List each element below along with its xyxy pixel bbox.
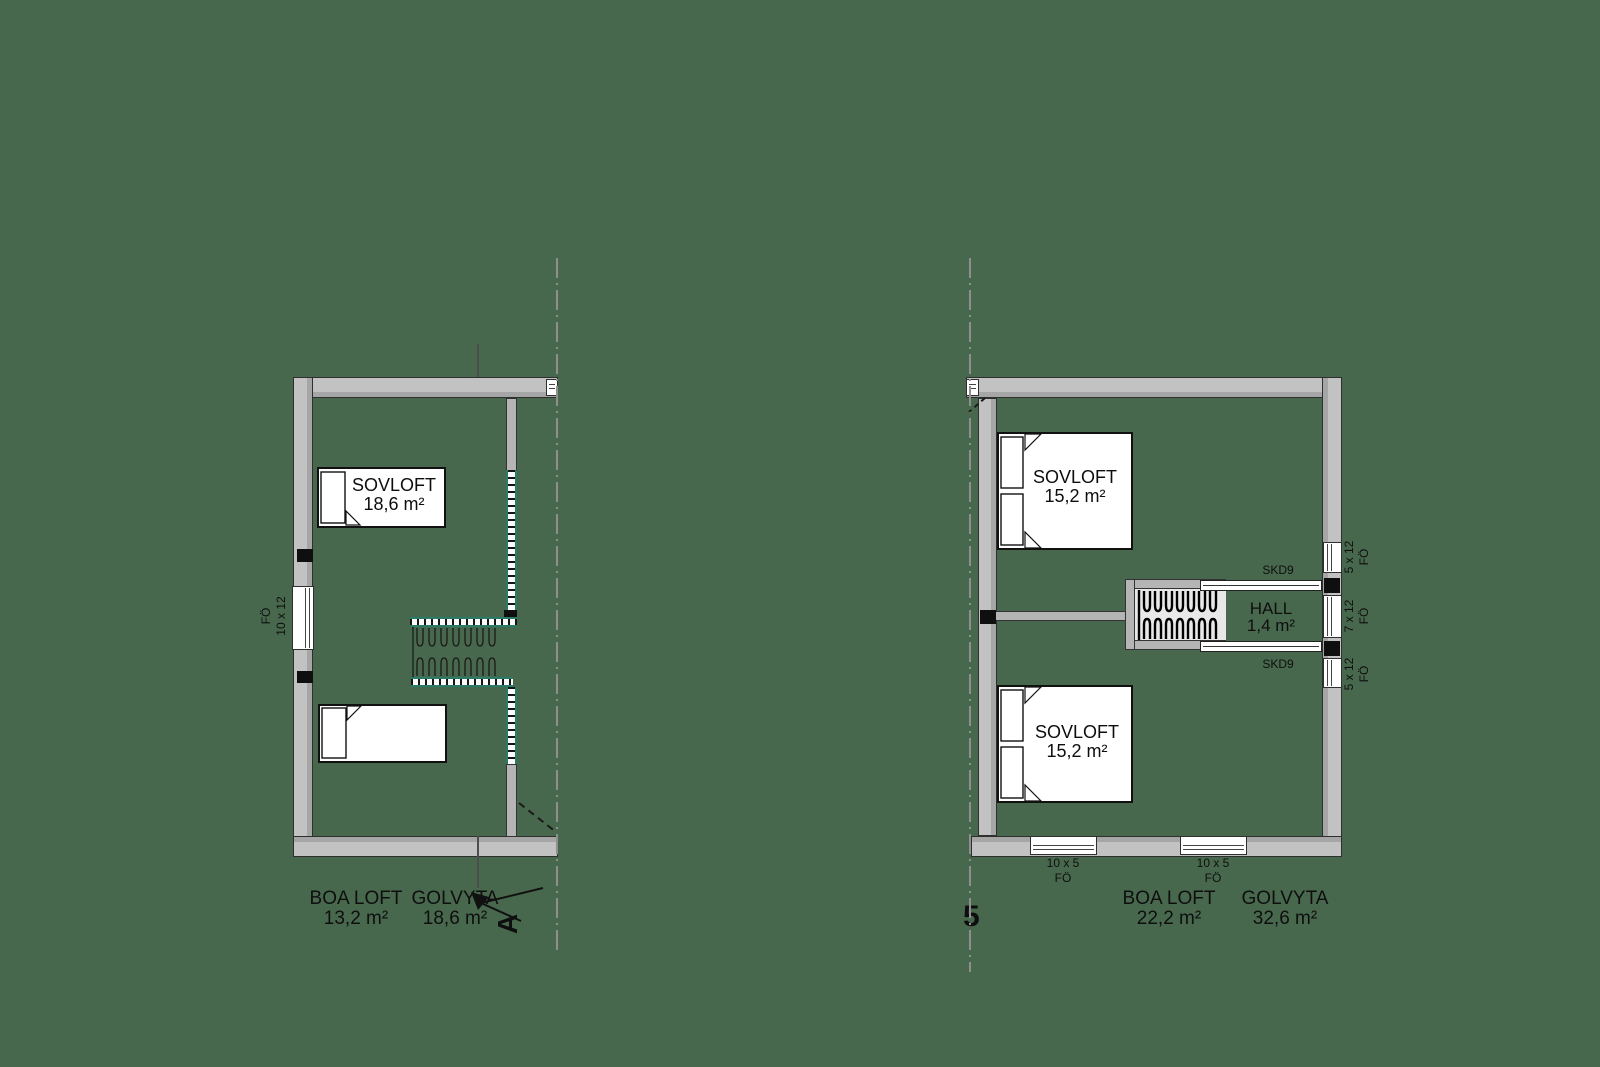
line-overlay	[0, 0, 1600, 1067]
section-a-arrow-tail	[481, 903, 521, 921]
section-a-arrow-tail	[481, 888, 543, 903]
roof-slope-dashed-line-right	[969, 398, 985, 412]
floor-plan-sheet: SOVLOFT 18,6 m² FÖ 10 x 12 BOA LOFT 13,2…	[0, 0, 1600, 1067]
roof-slope-dashed-line-left	[519, 803, 556, 832]
